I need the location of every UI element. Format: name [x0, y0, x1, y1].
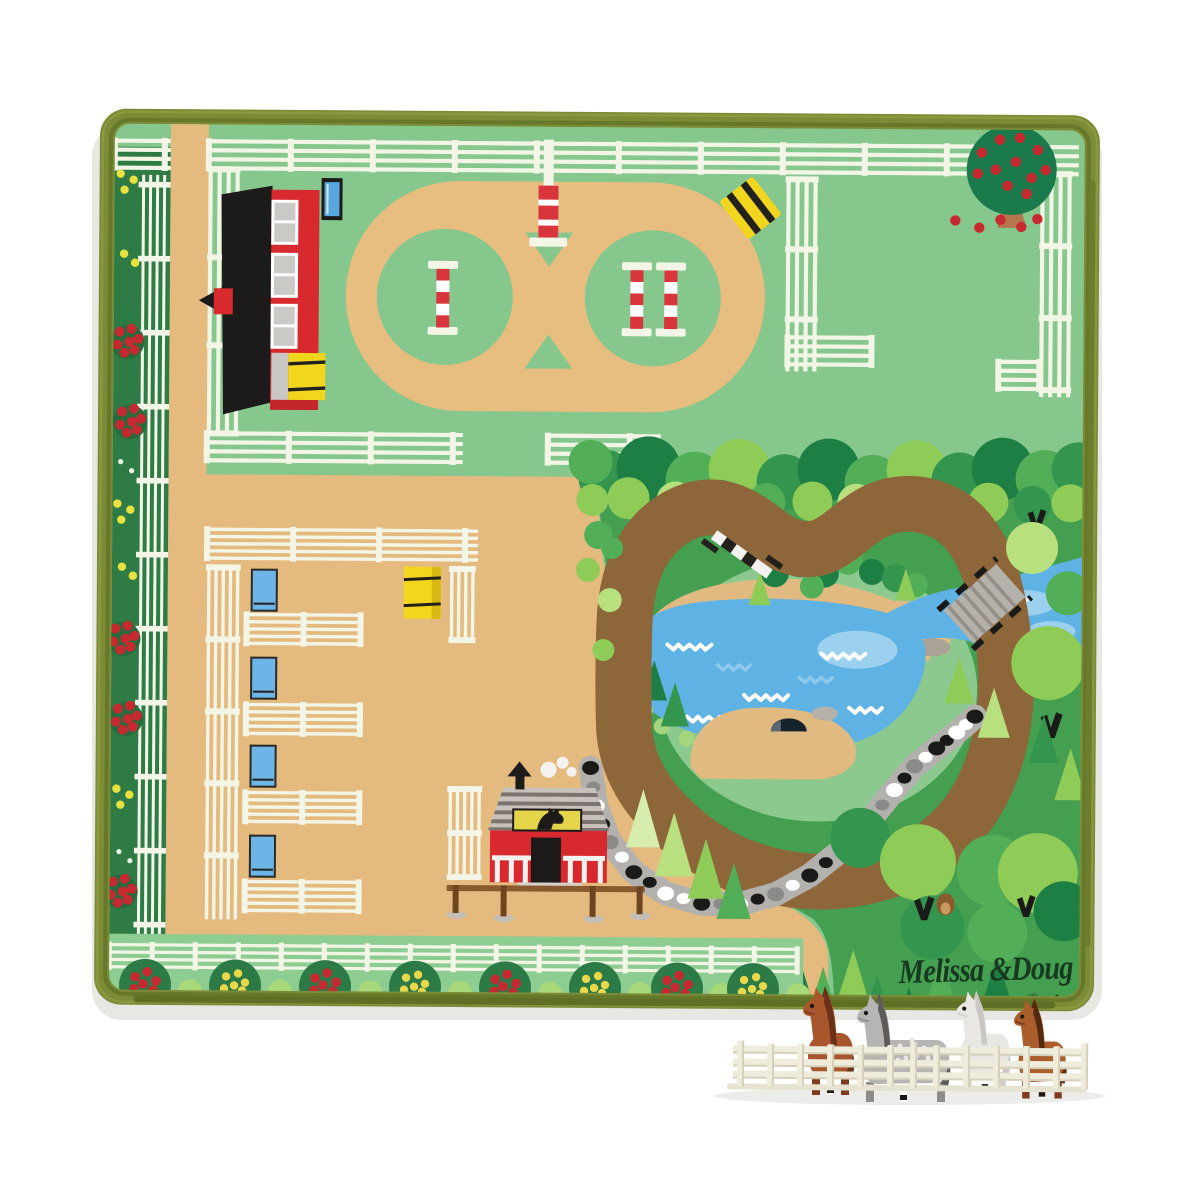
svg-text:Melissa &Doug: Melissa &Doug: [897, 949, 1074, 991]
